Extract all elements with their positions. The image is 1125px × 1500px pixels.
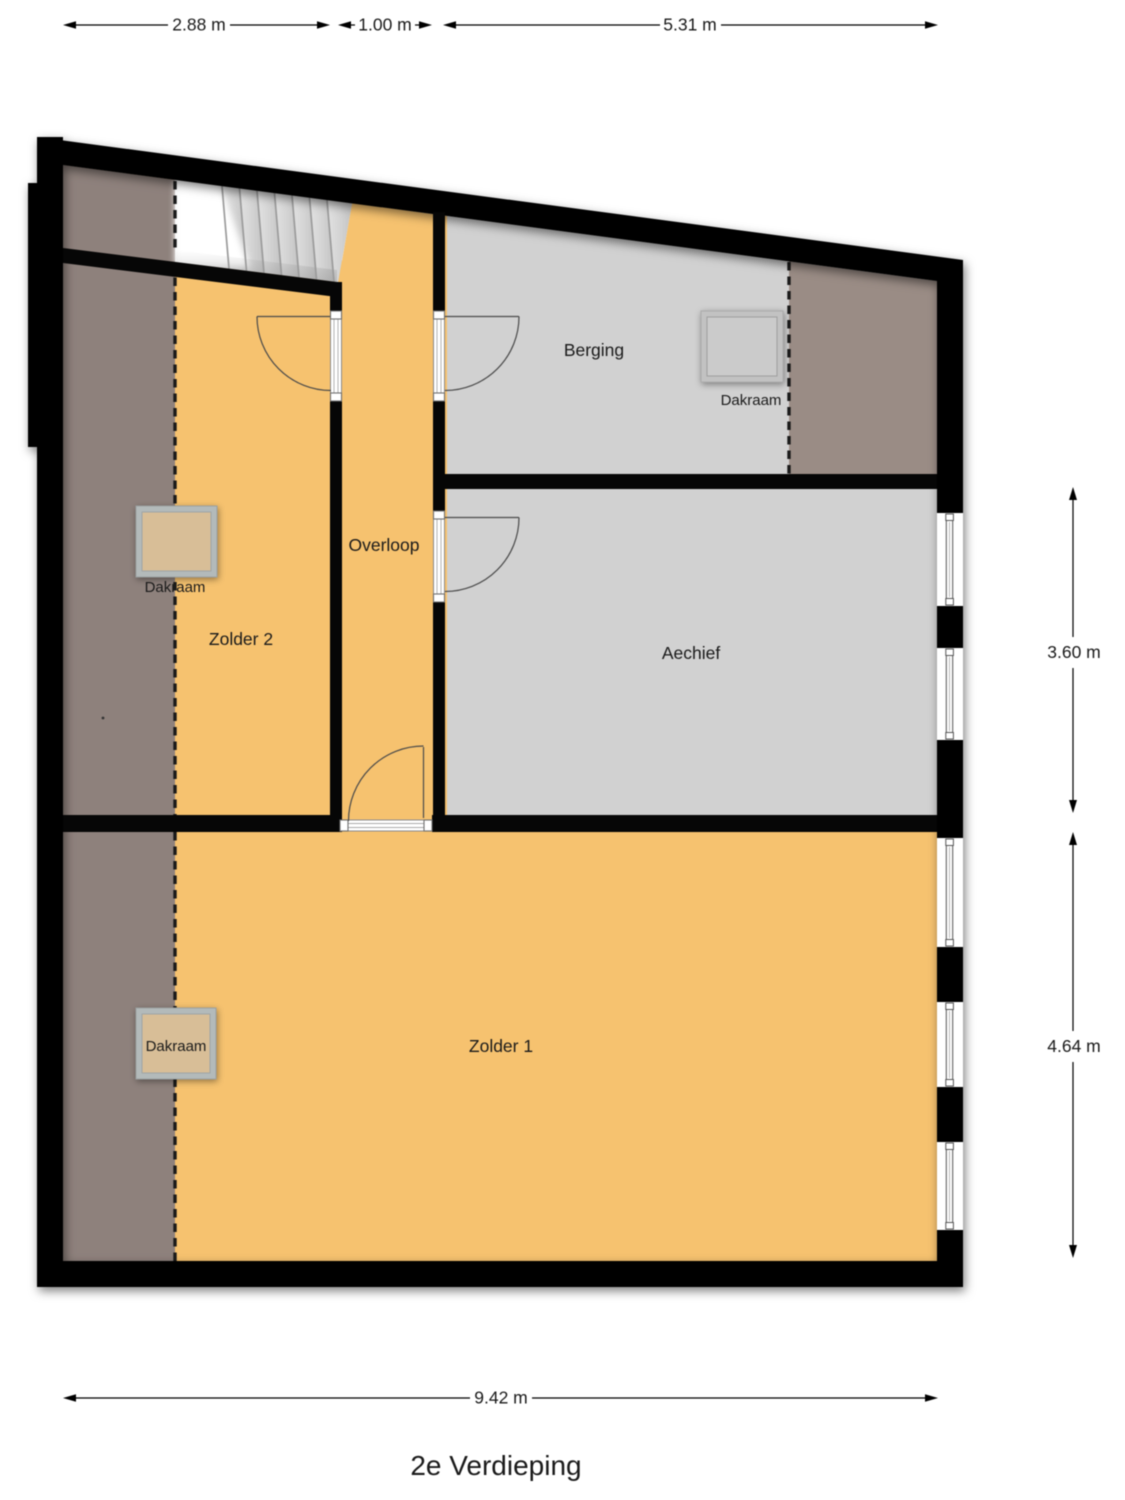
svg-text:Zolder 1: Zolder 1 — [469, 1036, 533, 1056]
svg-text:Zolder 2: Zolder 2 — [209, 629, 273, 649]
svg-text:Aechief: Aechief — [662, 643, 721, 663]
svg-text:Berging: Berging — [564, 340, 624, 360]
svg-text:4.64 m: 4.64 m — [1047, 1036, 1101, 1056]
svg-text:5.31 m: 5.31 m — [663, 15, 717, 35]
svg-text:Dakraam: Dakraam — [146, 1038, 207, 1055]
svg-text:2.88 m: 2.88 m — [172, 15, 226, 35]
svg-text:1.00 m: 1.00 m — [358, 15, 412, 35]
svg-text:3.60 m: 3.60 m — [1047, 642, 1101, 662]
svg-text:Overloop: Overloop — [348, 535, 419, 555]
svg-text:Dakraam: Dakraam — [145, 579, 206, 596]
svg-text:2e Verdieping: 2e Verdieping — [410, 1450, 581, 1481]
svg-text:Dakraam: Dakraam — [721, 392, 782, 409]
svg-text:9.42 m: 9.42 m — [474, 1388, 528, 1408]
